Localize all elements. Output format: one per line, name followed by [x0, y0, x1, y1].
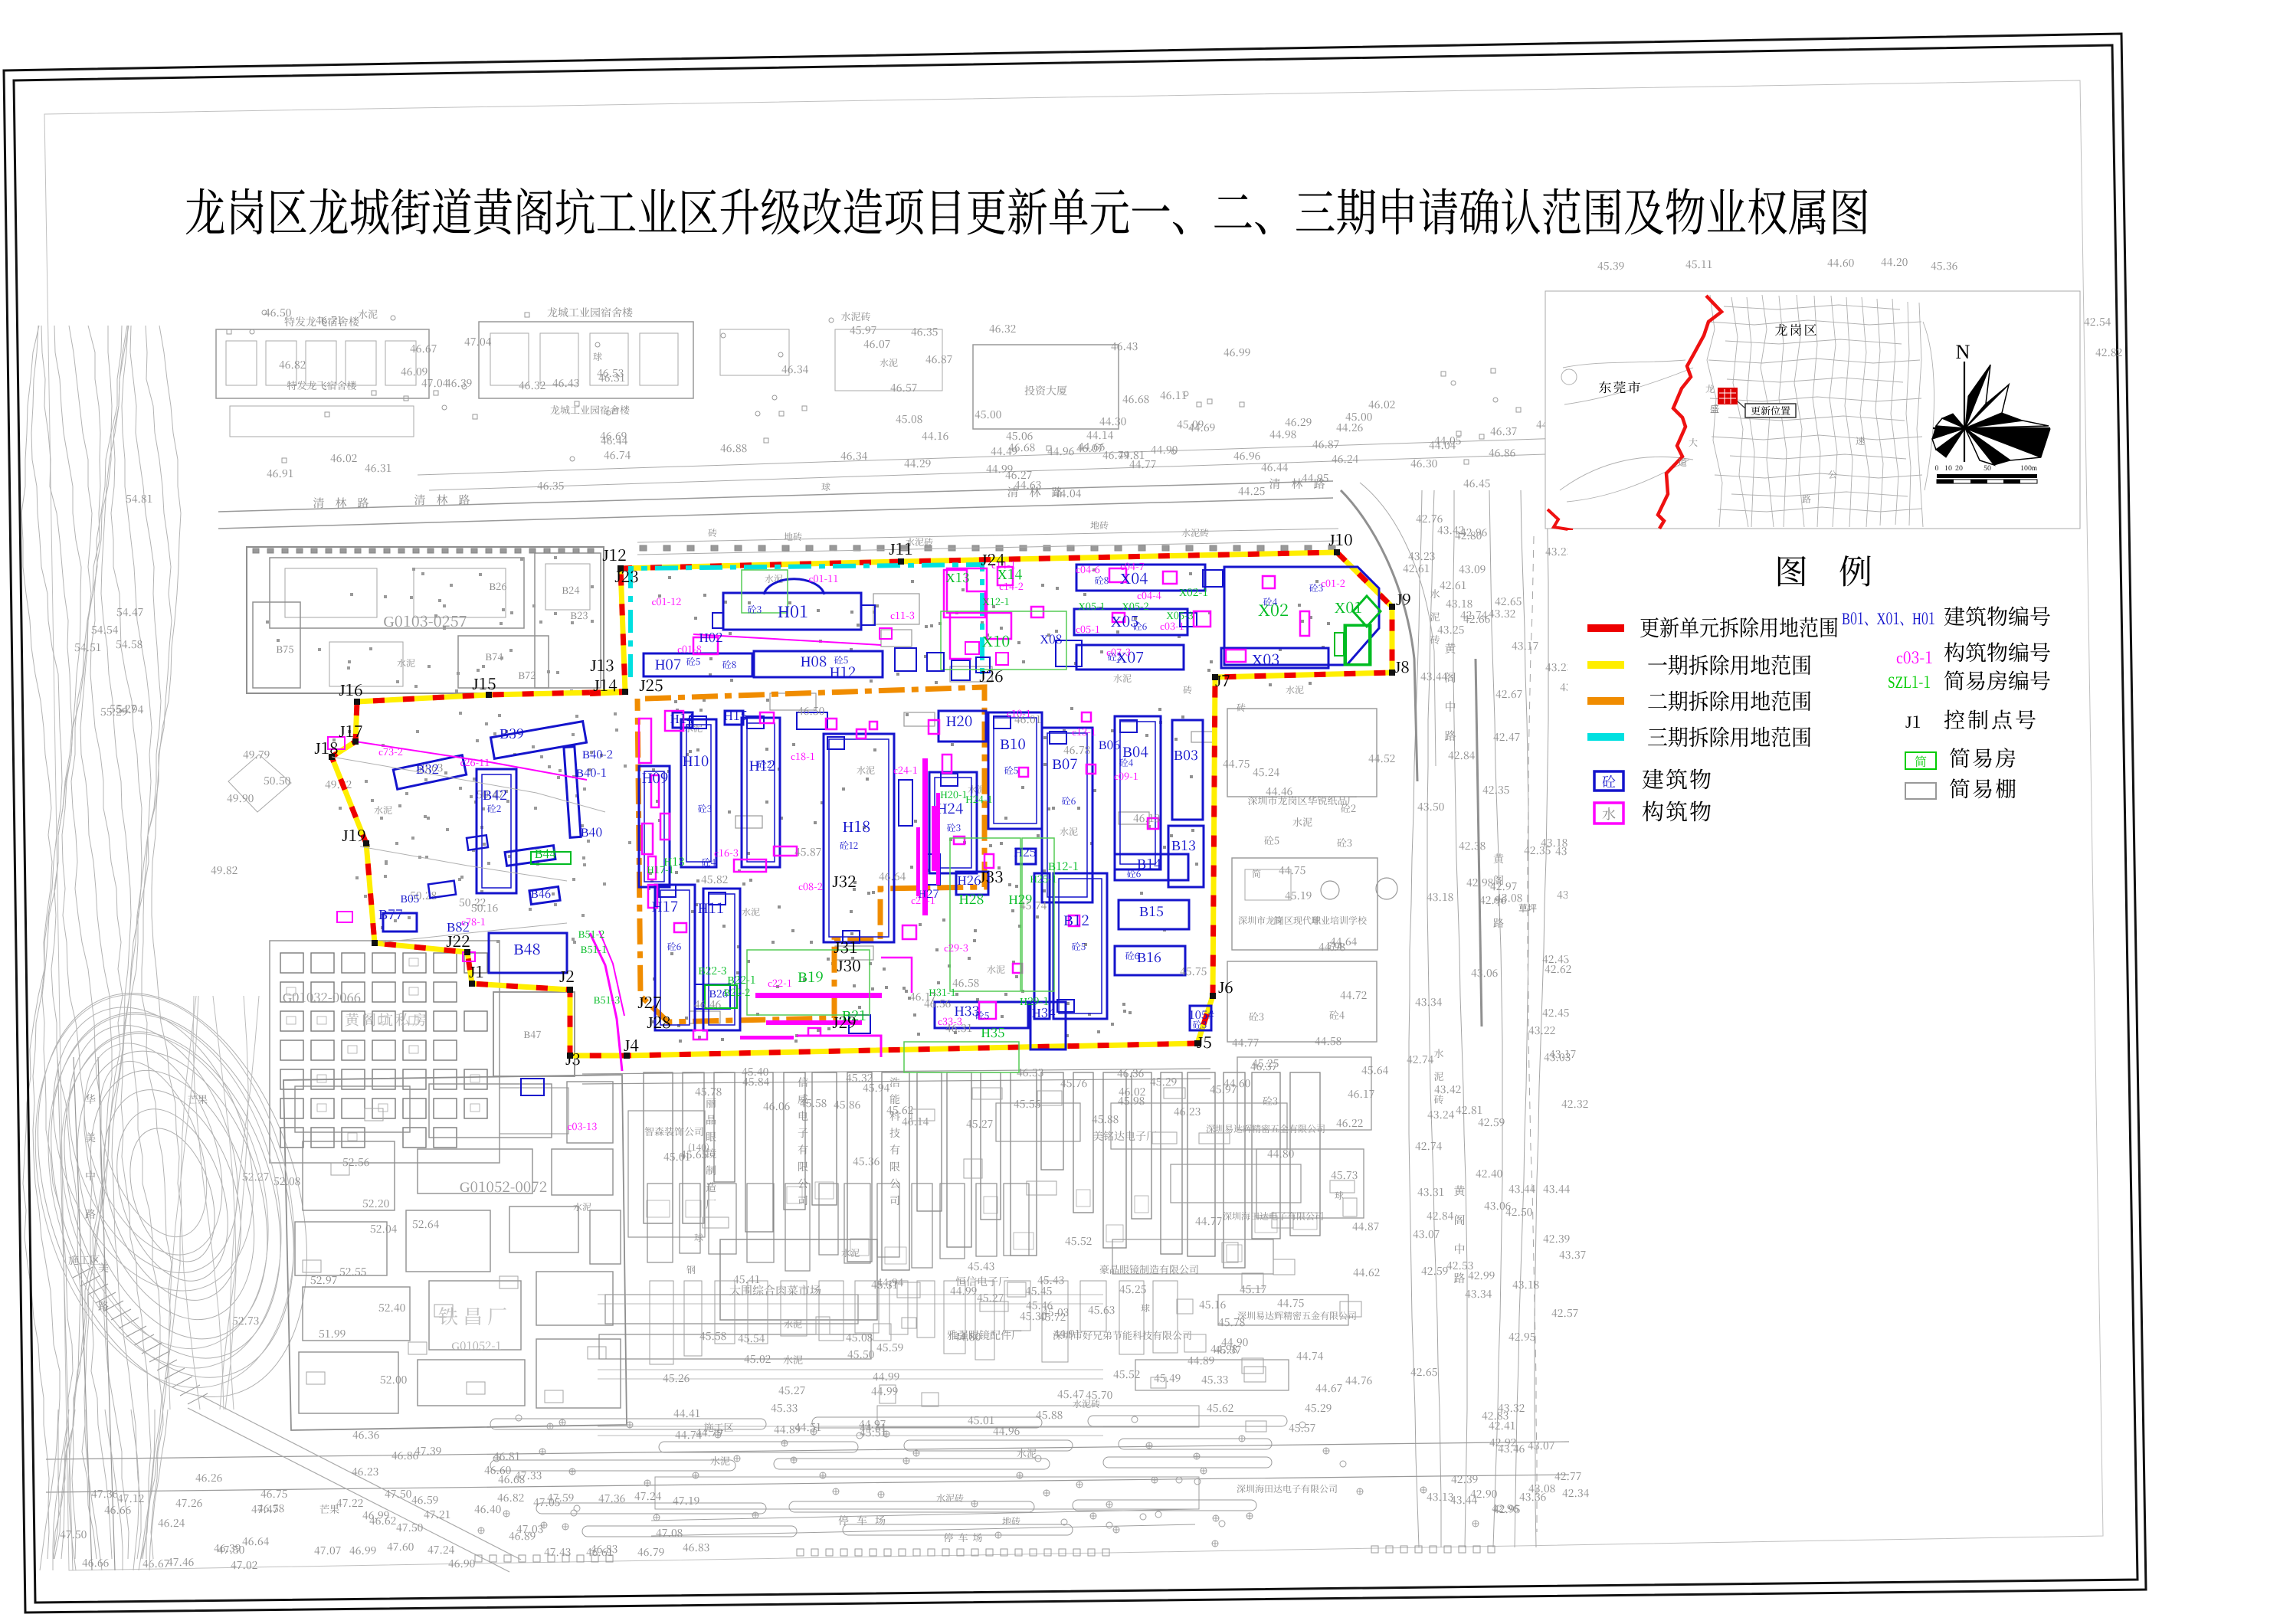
svg-text:砼: 砼 [1602, 771, 1616, 791]
svg-text:建筑物编号: 建筑物编号 [1944, 601, 2051, 631]
svg-text:45.41: 45.41 [733, 1272, 760, 1287]
svg-text:更新单元拆除用地范围: 更新单元拆除用地范围 [1640, 611, 1839, 643]
svg-text:砼3: 砼3 [698, 802, 712, 815]
svg-text:球: 球 [1141, 1301, 1150, 1315]
svg-text:45.01: 45.01 [968, 1413, 994, 1428]
svg-text:46.24: 46.24 [1332, 451, 1359, 467]
svg-text:B16: B16 [1137, 947, 1161, 967]
svg-text:图: 图 [1774, 545, 1808, 594]
svg-text:46.01: 46.01 [1014, 712, 1041, 727]
svg-text:47.43: 47.43 [544, 1544, 571, 1560]
svg-text:c04-4: c04-4 [1137, 588, 1161, 602]
svg-text:公: 公 [1828, 468, 1837, 481]
svg-text:46.36: 46.36 [352, 1427, 380, 1442]
svg-text:42.97: 42.97 [1490, 879, 1517, 894]
svg-text:B40-1: B40-1 [576, 765, 607, 781]
svg-text:42.39: 42.39 [1451, 1472, 1478, 1487]
svg-text:中: 中 [1453, 1241, 1465, 1257]
svg-text:46.61: 46.61 [586, 1544, 613, 1560]
svg-text:46.23: 46.23 [1174, 1104, 1201, 1119]
svg-text:J1: J1 [1905, 709, 1921, 733]
svg-text:X08: X08 [1040, 630, 1062, 647]
svg-text:44.80: 44.80 [954, 1329, 981, 1344]
svg-text:简易棚: 简易棚 [1949, 773, 2018, 804]
svg-text:X05-1: X05-1 [1078, 598, 1105, 613]
svg-text:43.44: 43.44 [1509, 1181, 1536, 1197]
svg-text:45.08: 45.08 [846, 1330, 873, 1345]
svg-text:44.98: 44.98 [1269, 427, 1296, 442]
svg-text:B51-3: B51-3 [594, 992, 621, 1007]
svg-text:45.45: 45.45 [1025, 1283, 1052, 1298]
svg-text:43.46: 43.46 [1498, 1441, 1525, 1456]
svg-text:B01、X01、H01: B01、X01、H01 [1842, 606, 1935, 630]
svg-text:46.87: 46.87 [925, 352, 952, 367]
svg-text:44.41: 44.41 [673, 1406, 700, 1421]
svg-text:45.27: 45.27 [977, 1290, 1004, 1305]
svg-text:46.56: 46.56 [924, 996, 952, 1011]
svg-text:水: 水 [1433, 1046, 1443, 1060]
svg-text:砼5: 砼5 [1264, 833, 1279, 847]
svg-text:球: 球 [694, 1231, 703, 1244]
svg-text:44.20: 44.20 [1881, 254, 1908, 270]
svg-text:45.17: 45.17 [1240, 1282, 1266, 1297]
svg-text:44.76: 44.76 [1345, 1373, 1373, 1388]
svg-text:52.40: 52.40 [378, 1300, 406, 1315]
svg-text:43.07: 43.07 [1413, 1226, 1440, 1242]
svg-text:42.81: 42.81 [1456, 1102, 1482, 1118]
svg-text:50.22: 50.22 [459, 895, 486, 910]
svg-text:龙城工业园宿舍楼: 龙城工业园宿舍楼 [547, 305, 633, 320]
svg-text:X01: X01 [1335, 595, 1362, 617]
svg-text:水泥: 水泥 [573, 1200, 591, 1213]
svg-text:46.34: 46.34 [781, 362, 809, 377]
svg-text:46.43: 46.43 [552, 375, 579, 391]
svg-text:B10: B10 [1000, 733, 1026, 754]
svg-text:45.76: 45.76 [1060, 1076, 1088, 1091]
svg-text:42.67: 42.67 [1495, 686, 1522, 702]
svg-text:控制点号: 控制点号 [1944, 704, 2039, 735]
svg-text:钢: 钢 [686, 1263, 696, 1276]
svg-text:水泥: 水泥 [987, 963, 1005, 976]
svg-text:42.95: 42.95 [1509, 1329, 1535, 1344]
svg-text:45.36: 45.36 [853, 1154, 880, 1169]
svg-text:砖: 砖 [708, 526, 717, 539]
svg-text:有: 有 [798, 1142, 808, 1157]
svg-text:45.62: 45.62 [1207, 1400, 1234, 1416]
svg-text:45.06: 45.06 [1006, 428, 1034, 444]
svg-text:水: 水 [1430, 586, 1440, 601]
svg-text:H28: H28 [959, 889, 984, 909]
svg-text:45.00: 45.00 [975, 407, 1002, 422]
svg-text:H18: H18 [843, 814, 870, 837]
svg-text:44.66: 44.66 [1078, 439, 1106, 454]
svg-text:47.60: 47.60 [387, 1539, 414, 1554]
svg-text:44.80: 44.80 [1267, 1146, 1295, 1161]
svg-text:水泥: 水泥 [784, 1318, 802, 1331]
svg-text:43.50: 43.50 [1417, 799, 1445, 814]
svg-text:46.66: 46.66 [82, 1555, 110, 1570]
svg-text:46.60: 46.60 [484, 1462, 512, 1478]
svg-text:45.26: 45.26 [663, 1370, 690, 1386]
svg-text:46.87: 46.87 [1312, 437, 1339, 452]
svg-text:砼12: 砼12 [840, 839, 859, 852]
svg-text:45.49: 45.49 [1154, 1370, 1181, 1386]
svg-text:43.18: 43.18 [1512, 1277, 1539, 1292]
svg-text:44.62: 44.62 [1353, 1265, 1381, 1280]
svg-text:一期拆除用地范围: 一期拆除用地范围 [1647, 649, 1812, 680]
svg-text:47.21: 47.21 [424, 1507, 450, 1522]
svg-text:H10: H10 [683, 750, 709, 771]
svg-text:45.58: 45.58 [800, 1095, 827, 1111]
svg-text:44.60: 44.60 [1224, 1076, 1251, 1091]
svg-text:46.83: 46.83 [683, 1540, 709, 1555]
svg-text:45.16: 45.16 [1199, 1297, 1227, 1312]
svg-text:50: 50 [1984, 463, 1991, 473]
svg-text:44.90: 44.90 [1221, 1334, 1249, 1350]
svg-text:44.30: 44.30 [1099, 414, 1127, 429]
svg-text:50.50: 50.50 [264, 773, 291, 788]
svg-text:水泥: 水泥 [1286, 683, 1304, 696]
svg-text:砼6: 砼6 [1127, 867, 1142, 880]
svg-text:54.58: 54.58 [116, 637, 142, 652]
svg-text:B51-1: B51-1 [581, 941, 608, 956]
svg-text:0: 0 [1935, 463, 1939, 473]
svg-text:49.82: 49.82 [211, 863, 238, 878]
svg-text:43.17: 43.17 [1512, 638, 1538, 653]
svg-text:司: 司 [798, 1193, 808, 1208]
svg-text:制: 制 [706, 1163, 716, 1178]
svg-text:44.60: 44.60 [1827, 255, 1855, 270]
svg-text:45.33: 45.33 [771, 1400, 798, 1416]
svg-text:42.40: 42.40 [1476, 1166, 1503, 1181]
svg-text:J14: J14 [593, 673, 617, 696]
svg-text:H02: H02 [699, 627, 723, 646]
svg-text:水泥砖: 水泥砖 [936, 1491, 964, 1504]
svg-text:45.55: 45.55 [1014, 1096, 1040, 1112]
svg-text:二期拆除用地范围: 二期拆除用地范围 [1647, 685, 1812, 716]
svg-text:43.13: 43.13 [1427, 1489, 1453, 1504]
svg-text:J2: J2 [559, 964, 575, 987]
svg-text:B26: B26 [490, 578, 507, 593]
svg-text:52.27: 52.27 [242, 1169, 269, 1184]
svg-text:47.50: 47.50 [60, 1527, 87, 1542]
svg-text:B40-2: B40-2 [582, 746, 613, 762]
svg-text:42.47: 42.47 [1493, 729, 1520, 745]
svg-text:44.74: 44.74 [675, 1427, 703, 1442]
svg-text:46.50: 46.50 [798, 703, 825, 719]
svg-text:J32: J32 [832, 869, 856, 892]
svg-text:J9: J9 [1396, 588, 1411, 611]
svg-text:45.58: 45.58 [699, 1328, 726, 1344]
svg-text:砼5: 砼5 [834, 653, 849, 666]
svg-text:B22-2: B22-2 [724, 984, 751, 999]
svg-text:46.99: 46.99 [1224, 345, 1250, 360]
svg-text:J24: J24 [981, 548, 1005, 571]
svg-text:深圳市龙岗区现代职业培训学校: 深圳市龙岗区现代职业培训学校 [1238, 914, 1367, 927]
svg-text:清林路: 清林路 [414, 492, 480, 508]
svg-text:45.65: 45.65 [680, 1147, 707, 1162]
svg-text:J11: J11 [889, 537, 912, 560]
svg-text:44.72: 44.72 [1340, 987, 1368, 1003]
svg-text:44.87: 44.87 [1352, 1219, 1379, 1234]
svg-text:44.96: 44.96 [1047, 444, 1075, 459]
svg-text:46.26: 46.26 [195, 1470, 223, 1485]
svg-text:46.06: 46.06 [763, 1098, 791, 1114]
svg-text:H35: H35 [981, 1022, 1005, 1041]
svg-text:42.82: 42.82 [2095, 345, 2123, 360]
svg-text:H25: H25 [1014, 843, 1036, 860]
svg-text:地砖: 地砖 [1002, 1514, 1020, 1527]
svg-text:47.24: 47.24 [634, 1488, 662, 1504]
svg-text:B40: B40 [581, 823, 602, 840]
svg-text:44.46: 44.46 [1266, 784, 1293, 799]
svg-text:45.25: 45.25 [1119, 1282, 1146, 1297]
svg-text:42.45: 42.45 [1542, 1005, 1569, 1020]
svg-text:47.50: 47.50 [396, 1520, 424, 1535]
svg-text:42.38: 42.38 [1459, 838, 1486, 853]
svg-text:46.57: 46.57 [890, 380, 917, 395]
svg-text:龙: 龙 [1705, 382, 1715, 395]
svg-text:44.89: 44.89 [1187, 1353, 1214, 1368]
svg-text:c01-12: c01-12 [652, 594, 682, 608]
svg-text:更新位置: 更新位置 [1751, 403, 1790, 417]
svg-text:42.84: 42.84 [1448, 748, 1476, 763]
svg-text:42.62: 42.62 [1545, 961, 1572, 977]
svg-text:45.86: 45.86 [834, 1097, 861, 1112]
svg-text:52.20: 52.20 [362, 1196, 390, 1211]
svg-text:H25-1: H25-1 [1030, 871, 1056, 886]
svg-text:B51-2: B51-2 [578, 926, 605, 941]
svg-text:X13: X13 [946, 567, 970, 586]
svg-text:建筑物: 建筑物 [1642, 763, 1713, 794]
svg-text:H17-1: H17-1 [647, 862, 673, 876]
svg-text:水泥: 水泥 [880, 356, 898, 369]
svg-text:47.39: 47.39 [414, 1443, 441, 1459]
svg-text:J33: J33 [979, 865, 1003, 888]
svg-text:46.23: 46.23 [352, 1464, 378, 1479]
svg-text:J28: J28 [647, 1010, 670, 1033]
svg-text:深圳易达辉精密五金有限公司: 深圳易达辉精密五金有限公司 [1237, 1309, 1357, 1322]
svg-text:砼3: 砼3 [1193, 1018, 1207, 1031]
svg-text:43.42: 43.42 [1434, 1082, 1462, 1097]
svg-text:45.36: 45.36 [1931, 258, 1958, 273]
svg-text:46.13: 46.13 [1133, 810, 1160, 826]
svg-text:c03-1: c03-1 [1896, 645, 1933, 669]
svg-text:J15: J15 [472, 672, 496, 695]
svg-text:46.89: 46.89 [509, 1528, 536, 1544]
svg-text:J1: J1 [469, 960, 484, 983]
svg-text:深圳海田达电子有限公司: 深圳海田达电子有限公司 [1223, 1210, 1324, 1223]
svg-text:54.51: 54.51 [74, 640, 101, 655]
svg-text:43.37: 43.37 [1559, 1247, 1586, 1262]
svg-text:45.59: 45.59 [876, 1340, 903, 1355]
svg-text:46.82: 46.82 [279, 357, 306, 372]
svg-text:B22-3: B22-3 [698, 963, 726, 978]
svg-text:J16: J16 [339, 678, 362, 701]
svg-text:45.88: 45.88 [1036, 1407, 1063, 1423]
svg-text:46.46: 46.46 [694, 997, 722, 1012]
svg-text:砼6: 砼6 [1062, 794, 1076, 807]
svg-text:停车场: 停车场 [838, 1513, 893, 1528]
svg-text:有: 有 [889, 1142, 900, 1157]
svg-text:47.22: 47.22 [336, 1495, 364, 1511]
svg-text:G01052-1: G01052-1 [451, 1338, 502, 1354]
svg-text:晶: 晶 [706, 1112, 716, 1128]
svg-text:J12: J12 [602, 543, 626, 566]
svg-text:44.94: 44.94 [876, 1275, 904, 1290]
svg-text:46.96: 46.96 [1233, 448, 1261, 463]
svg-text:限: 限 [889, 1159, 900, 1174]
svg-text:B12: B12 [1063, 909, 1089, 930]
svg-text:47.26: 47.26 [175, 1495, 203, 1511]
svg-text:42.96: 42.96 [1479, 892, 1507, 908]
svg-text:44.69: 44.69 [1188, 420, 1215, 435]
svg-text:c03-13: c03-13 [568, 1118, 598, 1133]
svg-text:黄阁坑私房: 黄阁坑私房 [345, 1009, 429, 1030]
svg-text:46.67: 46.67 [410, 341, 437, 356]
svg-text:45.51: 45.51 [860, 1425, 886, 1440]
svg-text:智森装饰公司: 智森装饰公司 [644, 1124, 704, 1138]
svg-text:47.59: 47.59 [547, 1490, 574, 1505]
svg-text:c04-7: c04-7 [1120, 558, 1145, 573]
svg-text:44.77: 44.77 [1195, 1213, 1222, 1229]
svg-text:46.71: 46.71 [316, 313, 342, 328]
svg-text:46.40: 46.40 [474, 1501, 502, 1517]
svg-text:47.24: 47.24 [427, 1542, 455, 1557]
svg-text:52.64: 52.64 [412, 1216, 440, 1232]
svg-text:46.11: 46.11 [1160, 388, 1187, 403]
svg-text:43.25: 43.25 [1437, 622, 1464, 637]
svg-text:43.44: 43.44 [1543, 1181, 1571, 1197]
svg-text:46.44: 46.44 [1261, 460, 1289, 475]
svg-text:46.79: 46.79 [637, 1544, 664, 1560]
svg-text:43.18: 43.18 [1446, 596, 1472, 611]
svg-text:45.11: 45.11 [1685, 257, 1712, 272]
svg-text:砼4: 砼4 [1329, 1007, 1345, 1022]
svg-text:技: 技 [889, 1125, 900, 1141]
svg-text:B44: B44 [535, 844, 556, 862]
svg-text:46.67: 46.67 [142, 1556, 169, 1571]
svg-text:42.74: 42.74 [1415, 1138, 1443, 1154]
svg-text:豪晶眼镜制造有限公司: 豪晶眼镜制造有限公司 [1099, 1262, 1199, 1276]
svg-text:45.75: 45.75 [1180, 964, 1207, 979]
svg-text:信: 信 [798, 1075, 808, 1090]
svg-text:水泥: 水泥 [742, 905, 760, 918]
svg-text:砼5: 砼5 [1004, 764, 1019, 777]
svg-text:46.43: 46.43 [1111, 339, 1138, 354]
svg-text:B03: B03 [1174, 745, 1198, 765]
svg-text:简: 简 [1252, 867, 1261, 880]
svg-text:B24: B24 [562, 582, 580, 597]
svg-text:46.66: 46.66 [104, 1502, 132, 1518]
svg-text:c01-11: c01-11 [809, 571, 839, 585]
svg-text:水泥: 水泥 [374, 804, 392, 817]
svg-text:B77: B77 [378, 904, 403, 924]
svg-text:砼5: 砼5 [1072, 940, 1086, 953]
svg-text:43.03: 43.03 [1544, 1049, 1571, 1065]
svg-text:H08: H08 [801, 650, 827, 671]
svg-text:45.63: 45.63 [1088, 1302, 1115, 1318]
svg-text:c13-1: c13-1 [1072, 724, 1096, 738]
svg-text:X02-1: X02-1 [1179, 584, 1208, 600]
svg-text:42.99: 42.99 [1468, 1268, 1495, 1283]
svg-text:44.75: 44.75 [1277, 1295, 1304, 1311]
svg-text:42.77: 42.77 [1554, 1468, 1581, 1484]
svg-text:投资大厦: 投资大厦 [1024, 383, 1067, 398]
svg-text:45.25: 45.25 [1252, 1056, 1279, 1071]
svg-text:砼3: 砼3 [1337, 835, 1352, 850]
svg-text:c11-3: c11-3 [890, 607, 915, 622]
svg-text:44.99: 44.99 [986, 461, 1013, 476]
svg-text:45.50: 45.50 [847, 1347, 875, 1362]
svg-text:46.99: 46.99 [349, 1543, 376, 1558]
svg-text:H20-1: H20-1 [940, 787, 967, 801]
svg-text:砼4: 砼4 [1263, 595, 1278, 608]
svg-text:45.03: 45.03 [1042, 1305, 1069, 1320]
svg-text:c03-1: c03-1 [1160, 618, 1184, 633]
svg-text:42.84: 42.84 [1427, 1208, 1454, 1223]
svg-text:46.34: 46.34 [840, 448, 868, 463]
svg-text:52.97: 52.97 [310, 1272, 337, 1288]
svg-text:X10: X10 [982, 629, 1010, 651]
svg-text:47.07: 47.07 [314, 1543, 341, 1558]
svg-text:46.32: 46.32 [519, 378, 546, 393]
svg-text:43.44: 43.44 [1450, 1492, 1478, 1508]
svg-text:水泥: 水泥 [1292, 814, 1312, 829]
svg-text:中: 中 [1444, 699, 1456, 715]
svg-text:46.50: 46.50 [264, 305, 292, 320]
svg-text:B13: B13 [1171, 835, 1196, 855]
svg-text:水泥砖: 水泥砖 [840, 309, 870, 323]
svg-text:47.08: 47.08 [656, 1525, 683, 1541]
svg-text:J10: J10 [1328, 528, 1352, 551]
svg-text:路: 路 [1493, 915, 1504, 931]
svg-text:46.81: 46.81 [493, 1449, 520, 1464]
svg-text:44.75: 44.75 [1279, 863, 1305, 878]
svg-text:砼5: 砼5 [975, 1009, 990, 1022]
svg-text:45.52: 45.52 [1065, 1233, 1092, 1249]
svg-text:G01032-0066: G01032-0066 [283, 987, 361, 1006]
svg-text:100m: 100m [2020, 463, 2037, 473]
svg-text:10: 10 [1944, 463, 1952, 473]
svg-text:44.29: 44.29 [904, 456, 931, 471]
svg-text:c26-11: c26-11 [460, 755, 490, 769]
svg-text:水泥砖: 水泥砖 [1181, 526, 1209, 539]
svg-text:H01: H01 [778, 599, 808, 623]
svg-text:G0103-0257: G0103-0257 [383, 609, 467, 631]
svg-text:G01052-0072: G01052-0072 [460, 1176, 547, 1197]
svg-text:43.34: 43.34 [1465, 1286, 1492, 1301]
svg-text:46.91: 46.91 [267, 466, 293, 481]
svg-text:54.81: 54.81 [126, 491, 152, 506]
svg-text:52.04: 52.04 [370, 1221, 398, 1236]
svg-text:H24-1: H24-1 [965, 791, 992, 806]
svg-text:B72: B72 [519, 667, 536, 682]
svg-text:42.35: 42.35 [1524, 843, 1551, 858]
svg-text:B39: B39 [500, 723, 524, 743]
svg-text:47.46: 47.46 [167, 1554, 195, 1570]
svg-text:H17: H17 [652, 895, 679, 916]
svg-text:44.16: 44.16 [922, 428, 949, 444]
svg-text:c14-2: c14-2 [999, 578, 1024, 593]
svg-text:水泥: 水泥 [1060, 825, 1078, 838]
svg-text:J22: J22 [446, 929, 470, 952]
svg-text:46.33: 46.33 [1017, 1065, 1043, 1080]
svg-text:砼4: 砼4 [702, 856, 716, 869]
svg-text:砼3: 砼3 [1263, 1093, 1278, 1108]
svg-text:54.47: 54.47 [116, 604, 143, 620]
svg-text:52.00: 52.00 [380, 1372, 408, 1387]
